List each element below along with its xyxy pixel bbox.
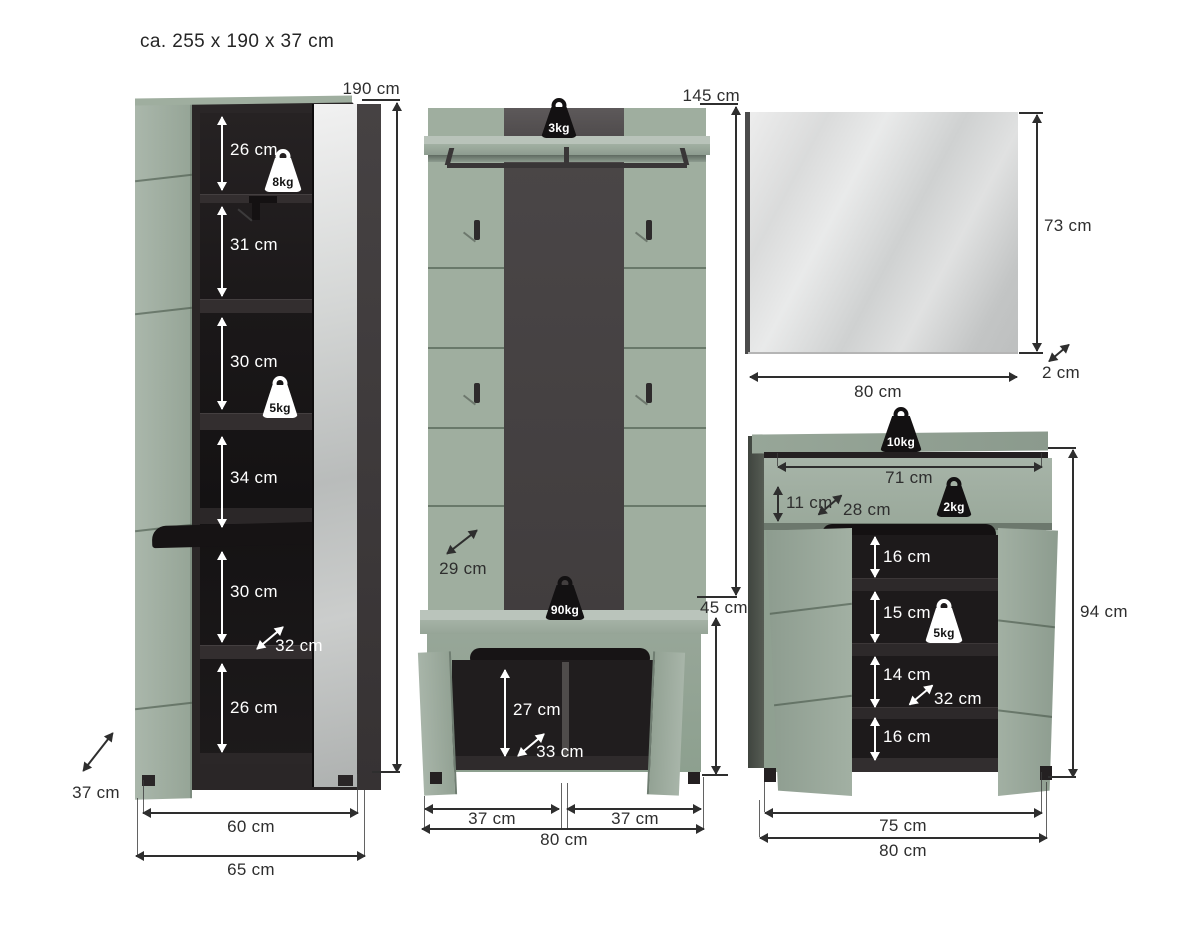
- dimension-label: 30 cm: [230, 582, 278, 602]
- tick: [700, 103, 738, 105]
- weight-label: 2kg: [936, 500, 972, 514]
- dimension-label: 65 cm: [227, 860, 275, 880]
- seam-line: [428, 267, 504, 269]
- dimension-label: 15 cm: [883, 603, 931, 623]
- weight-label: 3kg: [541, 121, 577, 135]
- dimension-arrow: [1072, 450, 1074, 777]
- coat-hook-icon: [646, 383, 652, 403]
- dimension-arrow: [735, 107, 737, 595]
- dimension-label: 33 cm: [536, 742, 584, 762]
- dimension-label: 14 cm: [883, 665, 931, 685]
- weight-icon: 3kg: [541, 98, 577, 138]
- extension-line: [561, 783, 562, 828]
- tick: [1048, 776, 1076, 778]
- seam-line: [766, 695, 852, 707]
- extension-line: [703, 777, 704, 828]
- dimension-arrow: [136, 855, 365, 857]
- extension-line: [759, 800, 760, 837]
- dimension-arrow: [221, 664, 223, 752]
- seam-line: [998, 709, 1058, 718]
- coat-hook-icon: [474, 220, 480, 240]
- rail-bracket: [564, 147, 569, 165]
- dimension-arrow: [874, 592, 876, 642]
- dimension-arrow: [874, 718, 876, 760]
- dimension-label: 73 cm: [1044, 216, 1092, 236]
- dimension-arrow: [874, 657, 876, 707]
- weight-icon: 90kg: [545, 576, 585, 620]
- dimension-arrow: [777, 487, 779, 521]
- seam-line: [135, 174, 192, 182]
- dimension-arrow: [221, 207, 223, 296]
- dimension-label: 27 cm: [513, 700, 561, 720]
- dimension-arrow: [715, 618, 717, 774]
- depth-arrow: [1048, 344, 1069, 362]
- dimension-arrow: [396, 103, 398, 772]
- foot: [430, 772, 442, 784]
- extension-line: [1046, 782, 1047, 837]
- mirror-bottom-line: [748, 352, 1018, 354]
- dimension-arrow: [504, 670, 506, 756]
- shoecab-shelf: [850, 643, 1000, 656]
- seam-line: [624, 427, 706, 429]
- shoecab-shelf: [850, 578, 1000, 591]
- seam-line: [624, 267, 706, 269]
- dimension-arrow: [143, 812, 358, 814]
- dimension-label: 94 cm: [1080, 602, 1128, 622]
- dimension-label: 37 cm: [72, 783, 120, 803]
- dimension-label: 80 cm: [854, 382, 902, 402]
- tick: [362, 99, 400, 101]
- weight-label: 8kg: [264, 175, 302, 189]
- weight-icon: 5kg: [262, 376, 298, 418]
- seam-line: [624, 505, 706, 507]
- dimension-label: 28 cm: [843, 500, 891, 520]
- foot: [338, 775, 353, 786]
- seam-line: [135, 702, 192, 710]
- dimension-arrow: [221, 117, 223, 190]
- weight-label: 10kg: [880, 435, 922, 449]
- dimension-label: 71 cm: [885, 468, 933, 488]
- dimension-label: 31 cm: [230, 235, 278, 255]
- wardrobe-shelf: [200, 299, 312, 313]
- seam-line: [428, 347, 504, 349]
- dimension-label: 45 cm: [700, 598, 748, 618]
- tick: [372, 771, 400, 773]
- extension-line: [137, 798, 138, 855]
- foot: [764, 768, 776, 782]
- furniture-dimension-diagram: ca. 255 x 190 x 37 cm 26 cm 31 cm 30 cm …: [0, 0, 1200, 929]
- dimension-arrow: [221, 318, 223, 409]
- dimension-arrow: [874, 537, 876, 577]
- weight-icon: 2kg: [936, 477, 972, 517]
- dimension-arrow: [221, 552, 223, 642]
- seam-line: [428, 427, 504, 429]
- seam-line: [624, 347, 706, 349]
- dimension-arrow: [1036, 115, 1038, 351]
- weight-icon: 10kg: [880, 407, 922, 452]
- dimension-label: 37 cm: [611, 809, 659, 829]
- extension-line: [364, 790, 365, 855]
- weight-label: 5kg: [262, 401, 298, 415]
- dimension-label: 80 cm: [879, 841, 927, 861]
- shoecab-side-panel: [748, 436, 764, 768]
- weight-label: 5kg: [925, 626, 963, 640]
- depth-arrow: [82, 732, 113, 771]
- dimension-label: 34 cm: [230, 468, 278, 488]
- dimension-label: 32 cm: [934, 689, 982, 709]
- shoecab-right-door: [998, 528, 1058, 796]
- wardrobe-pullout-shelf: [152, 522, 317, 548]
- bench-right-door: [647, 651, 685, 795]
- dimension-label: 190 cm: [342, 79, 400, 99]
- wardrobe-bottom-board: [200, 753, 312, 764]
- dimension-label: 60 cm: [227, 817, 275, 837]
- dimension-label: 29 cm: [439, 559, 487, 579]
- coat-hook-icon: [474, 383, 480, 403]
- wardrobe-hook-icon: [249, 196, 277, 203]
- tick: [702, 774, 728, 776]
- dimension-label: 16 cm: [883, 547, 931, 567]
- dimension-label: 2 cm: [1042, 363, 1080, 383]
- mirror: [750, 112, 1018, 353]
- seam-line: [135, 307, 192, 315]
- wardrobe-mirror-door: [312, 104, 357, 787]
- dimension-label: 32 cm: [275, 636, 323, 656]
- wardrobe-left-door: [135, 98, 192, 799]
- dimension-label: 26 cm: [230, 698, 278, 718]
- seam-line: [766, 603, 852, 615]
- extension-line: [357, 774, 358, 812]
- dimension-arrow: [750, 376, 1017, 378]
- coatrack-accent-stripe: [504, 108, 624, 610]
- dimension-label: 75 cm: [879, 816, 927, 836]
- coat-hook-icon: [646, 220, 652, 240]
- weight-label: 90kg: [545, 603, 585, 617]
- seam-line: [428, 505, 504, 507]
- foot: [688, 772, 700, 784]
- dimension-arrow: [760, 837, 1047, 839]
- wardrobe-hook-icon: [252, 203, 260, 220]
- dimension-arrow: [221, 437, 223, 527]
- weight-icon: 8kg: [264, 149, 302, 192]
- dimension-label: 80 cm: [540, 830, 588, 850]
- dimension-label: 37 cm: [468, 809, 516, 829]
- wardrobe-door-edge: [357, 104, 381, 790]
- extension-line: [1041, 772, 1042, 812]
- shoecab-left-door: [766, 528, 852, 796]
- tick: [1019, 352, 1043, 354]
- seam-line: [998, 619, 1058, 628]
- dimension-label: 16 cm: [883, 727, 931, 747]
- dimension-arrow: [765, 812, 1042, 814]
- dimension-label: 30 cm: [230, 352, 278, 372]
- bench-top-front: [420, 620, 708, 634]
- overall-dimensions-title: ca. 255 x 190 x 37 cm: [140, 31, 334, 53]
